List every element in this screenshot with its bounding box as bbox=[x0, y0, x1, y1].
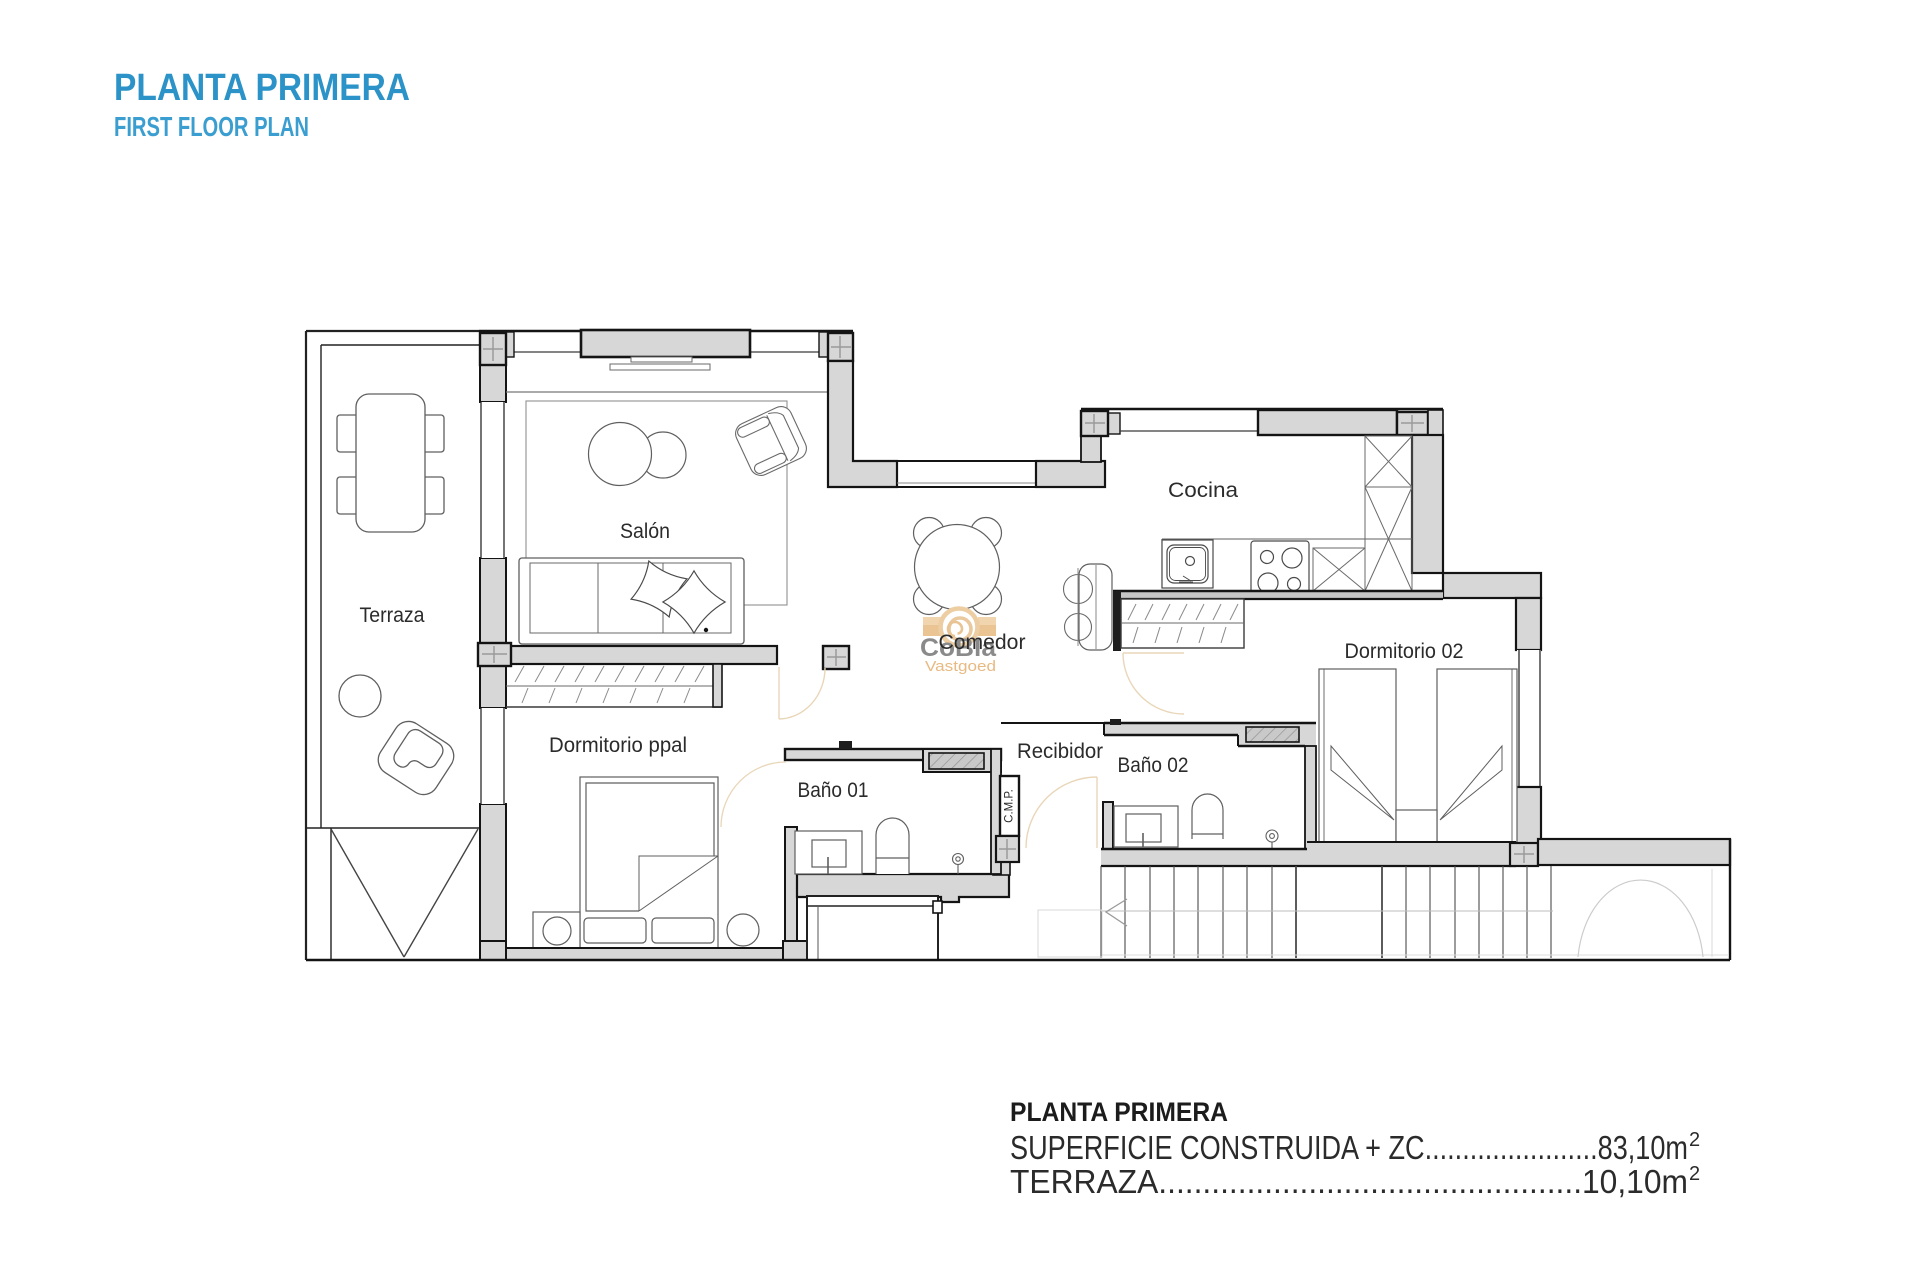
svg-text:PLANTA PRIMERA: PLANTA PRIMERA bbox=[114, 67, 410, 109]
svg-text:C.M.P.: C.M.P. bbox=[1004, 789, 1016, 823]
svg-text:Baño 01: Baño 01 bbox=[798, 778, 869, 802]
svg-text:Salón: Salón bbox=[620, 519, 670, 543]
svg-text:PLANTA PRIMERA: PLANTA PRIMERA bbox=[1010, 1097, 1228, 1127]
svg-text:Recibidor: Recibidor bbox=[1017, 739, 1103, 763]
svg-text:Vastgoed: Vastgoed bbox=[925, 659, 996, 675]
svg-text:Comedor: Comedor bbox=[939, 630, 1026, 654]
svg-text:Cocina: Cocina bbox=[1168, 478, 1238, 502]
svg-text:Terraza: Terraza bbox=[360, 603, 425, 627]
svg-text:2: 2 bbox=[1689, 1163, 1700, 1185]
svg-text:Dormitorio 02: Dormitorio 02 bbox=[1345, 639, 1464, 663]
svg-text:SUPERFICIE CONSTRUIDA + ZC....: SUPERFICIE CONSTRUIDA + ZC..............… bbox=[1010, 1129, 1688, 1166]
svg-text:FIRST FLOOR PLAN: FIRST FLOOR PLAN bbox=[114, 111, 309, 142]
svg-text:Dormitorio ppal: Dormitorio ppal bbox=[549, 733, 687, 757]
svg-text:Baño 02: Baño 02 bbox=[1118, 753, 1189, 777]
svg-text:TERRAZA.......................: TERRAZA.................................… bbox=[1010, 1163, 1688, 1200]
svg-text:2: 2 bbox=[1689, 1129, 1700, 1151]
